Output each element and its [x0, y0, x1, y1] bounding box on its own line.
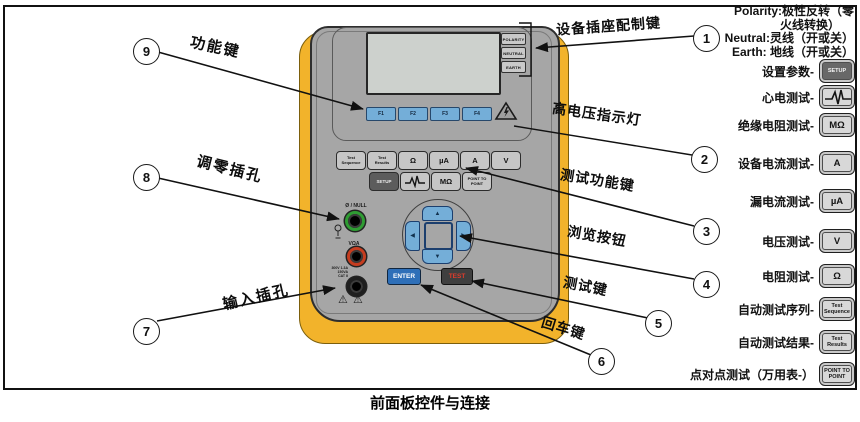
legend-megaohm-key: MΩ	[819, 113, 855, 137]
legend-label-resistance: 电阻测试-	[762, 268, 814, 285]
setup-key: SETUP	[369, 172, 399, 191]
right-arrow-icon: ▶	[461, 233, 466, 239]
nav-right-key: ▶	[456, 221, 471, 251]
up-arrow-icon: ▲	[435, 211, 441, 217]
legend-test-results-key: Test Results	[819, 330, 855, 354]
f4-key: F4	[462, 107, 492, 121]
null-jack-label: Ø / NULL	[330, 203, 382, 209]
caution-icon: ⚠	[353, 295, 363, 306]
neutral-key: NEUTRAL	[501, 47, 526, 59]
legend-label-leakage-current: 漏电流测试-	[750, 193, 814, 210]
megaohm-key: MΩ	[431, 172, 461, 191]
figure-caption: 前面板控件与连接	[0, 392, 860, 413]
f3-key: F3	[430, 107, 460, 121]
legend-ecg-key	[819, 85, 855, 109]
nav-up-key: ▲	[422, 206, 453, 221]
polarity-line2: 火线转换）	[664, 19, 854, 33]
nav-left-key: ◀	[405, 221, 420, 251]
legend-microamp-key: µA	[819, 189, 855, 213]
volt-key: V	[491, 151, 521, 170]
test-results-key: Test Results	[367, 151, 397, 170]
enter-key: ENTER	[387, 268, 421, 285]
vohm-jack	[347, 247, 366, 266]
microamp-key: µA	[429, 151, 459, 170]
amp-key: A	[460, 151, 490, 170]
legend-point-to-point-key: POINT TO POINT	[819, 362, 855, 386]
legend-label-ecg: 心电测试-	[762, 89, 814, 106]
legend-volt-key: V	[819, 229, 855, 253]
legend-amp-key: A	[819, 151, 855, 175]
legend-label-equipment-current: 设备电流测试-	[738, 155, 814, 172]
callout-8: 8	[133, 164, 160, 191]
input-jack-rating: 300V 1.3A 150VA CAT II	[324, 266, 348, 278]
legend-ohm-key: Ω	[819, 264, 855, 288]
f1-key: F1	[366, 107, 396, 121]
ecg-icon	[823, 88, 851, 106]
test-sequence-key: Test Sequence	[336, 151, 366, 170]
legend-label-test-results: 自动测试结果-	[738, 334, 814, 351]
high-voltage-indicator-icon	[494, 101, 518, 126]
left-arrow-icon: ◀	[410, 233, 415, 239]
down-arrow-icon: ▼	[435, 254, 441, 260]
vohm-jack-label: VΩA	[332, 241, 376, 247]
callout-3: 3	[693, 218, 720, 245]
ecg-icon	[403, 175, 427, 188]
legend-label-voltage: 电压测试-	[762, 233, 814, 250]
callout-2: 2	[691, 146, 718, 173]
callout-1: 1	[693, 25, 720, 52]
callout-5: 5	[645, 310, 672, 337]
point-to-point-key: POINT TO POINT	[462, 172, 492, 191]
callout-6: 6	[588, 348, 615, 375]
callout-9: 9	[133, 38, 160, 65]
ecg-key	[400, 172, 430, 191]
manual-figure: POLARITY NEUTRAL EARTH F1 F2 F3 F4 Test …	[0, 0, 860, 422]
caution-icon: ⚠	[338, 295, 348, 306]
earth-line: Earth: 地线（开或关）	[664, 46, 854, 60]
null-jack	[345, 211, 365, 231]
lcd-screen	[366, 32, 501, 95]
nav-down-key: ▼	[422, 249, 453, 264]
polarity-line: Polarity:极性反转（零	[664, 5, 854, 19]
nav-center	[424, 222, 453, 250]
legend-label-test-sequence: 自动测试序列-	[738, 301, 814, 318]
polarity-legend: Polarity:极性反转（零 火线转换） Neutral:灵线（开或关） Ea…	[664, 5, 854, 59]
earth-key: EARTH	[501, 61, 526, 73]
f2-key: F2	[398, 107, 428, 121]
legend-label-point-to-point: 点对点测试（万用表-）	[690, 366, 814, 383]
polarity-key: POLARITY	[501, 33, 526, 45]
callout-7: 7	[133, 318, 160, 345]
ohm-key: Ω	[398, 151, 428, 170]
test-key: TEST	[441, 268, 473, 285]
legend-setup-key: SETUP	[819, 59, 855, 83]
legend-label-insulation: 绝缘电阻测试-	[738, 117, 814, 134]
callout-4: 4	[693, 271, 720, 298]
legend-label-setup: 设置参数-	[762, 63, 814, 80]
legend-test-sequence-key: Test Sequence	[819, 297, 855, 321]
